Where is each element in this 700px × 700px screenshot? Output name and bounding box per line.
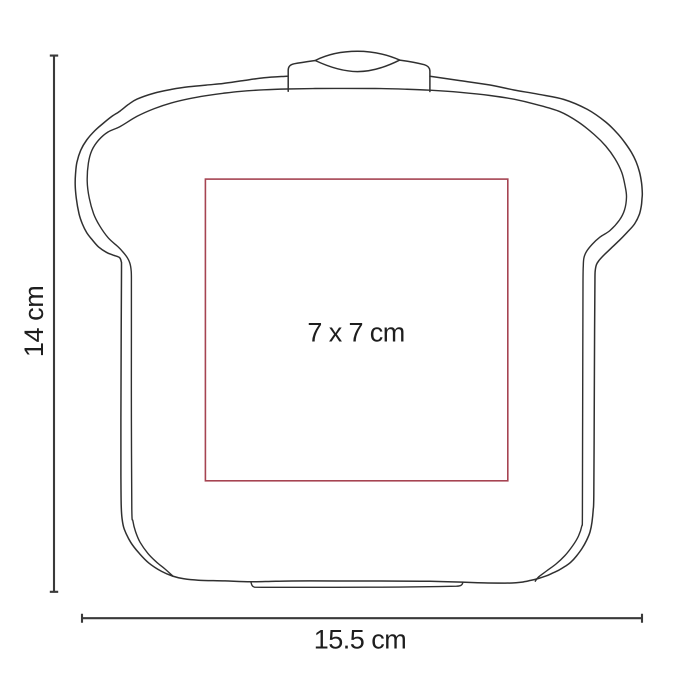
svg-text:14 cm: 14 cm (19, 286, 49, 358)
svg-text:7 x 7 cm: 7 x 7 cm (307, 318, 404, 348)
svg-text:15.5 cm: 15.5 cm (314, 625, 407, 655)
